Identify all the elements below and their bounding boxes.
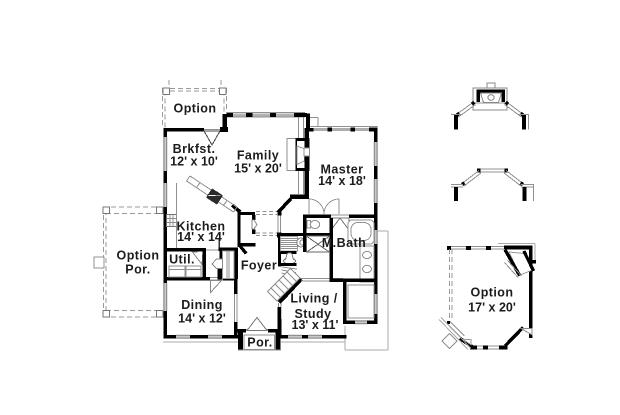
svg-text:Living /: Living / xyxy=(290,292,337,306)
svg-text:Dining: Dining xyxy=(181,298,223,312)
svg-text:M.Bath: M.Bath xyxy=(322,236,366,250)
svg-text:Family: Family xyxy=(237,149,279,163)
svg-text:14' x 18': 14' x 18' xyxy=(318,174,366,188)
svg-text:Foyer: Foyer xyxy=(241,259,277,273)
svg-text:14' x 12': 14' x 12' xyxy=(178,312,226,326)
svg-text:Option: Option xyxy=(471,286,514,300)
svg-text:17' x 20': 17' x 20' xyxy=(468,301,516,315)
svg-text:15' x 20': 15' x 20' xyxy=(234,162,282,176)
svg-text:13' x 11': 13' x 11' xyxy=(292,318,339,332)
svg-text:12' x 10': 12' x 10' xyxy=(170,155,218,169)
svg-text:Util.: Util. xyxy=(169,253,195,267)
svg-text:Por.: Por. xyxy=(247,336,272,350)
svg-text:14' x 14': 14' x 14' xyxy=(177,230,225,244)
svg-text:Option: Option xyxy=(117,249,160,263)
svg-text:Option: Option xyxy=(174,102,217,116)
svg-text:Por.: Por. xyxy=(125,263,150,277)
